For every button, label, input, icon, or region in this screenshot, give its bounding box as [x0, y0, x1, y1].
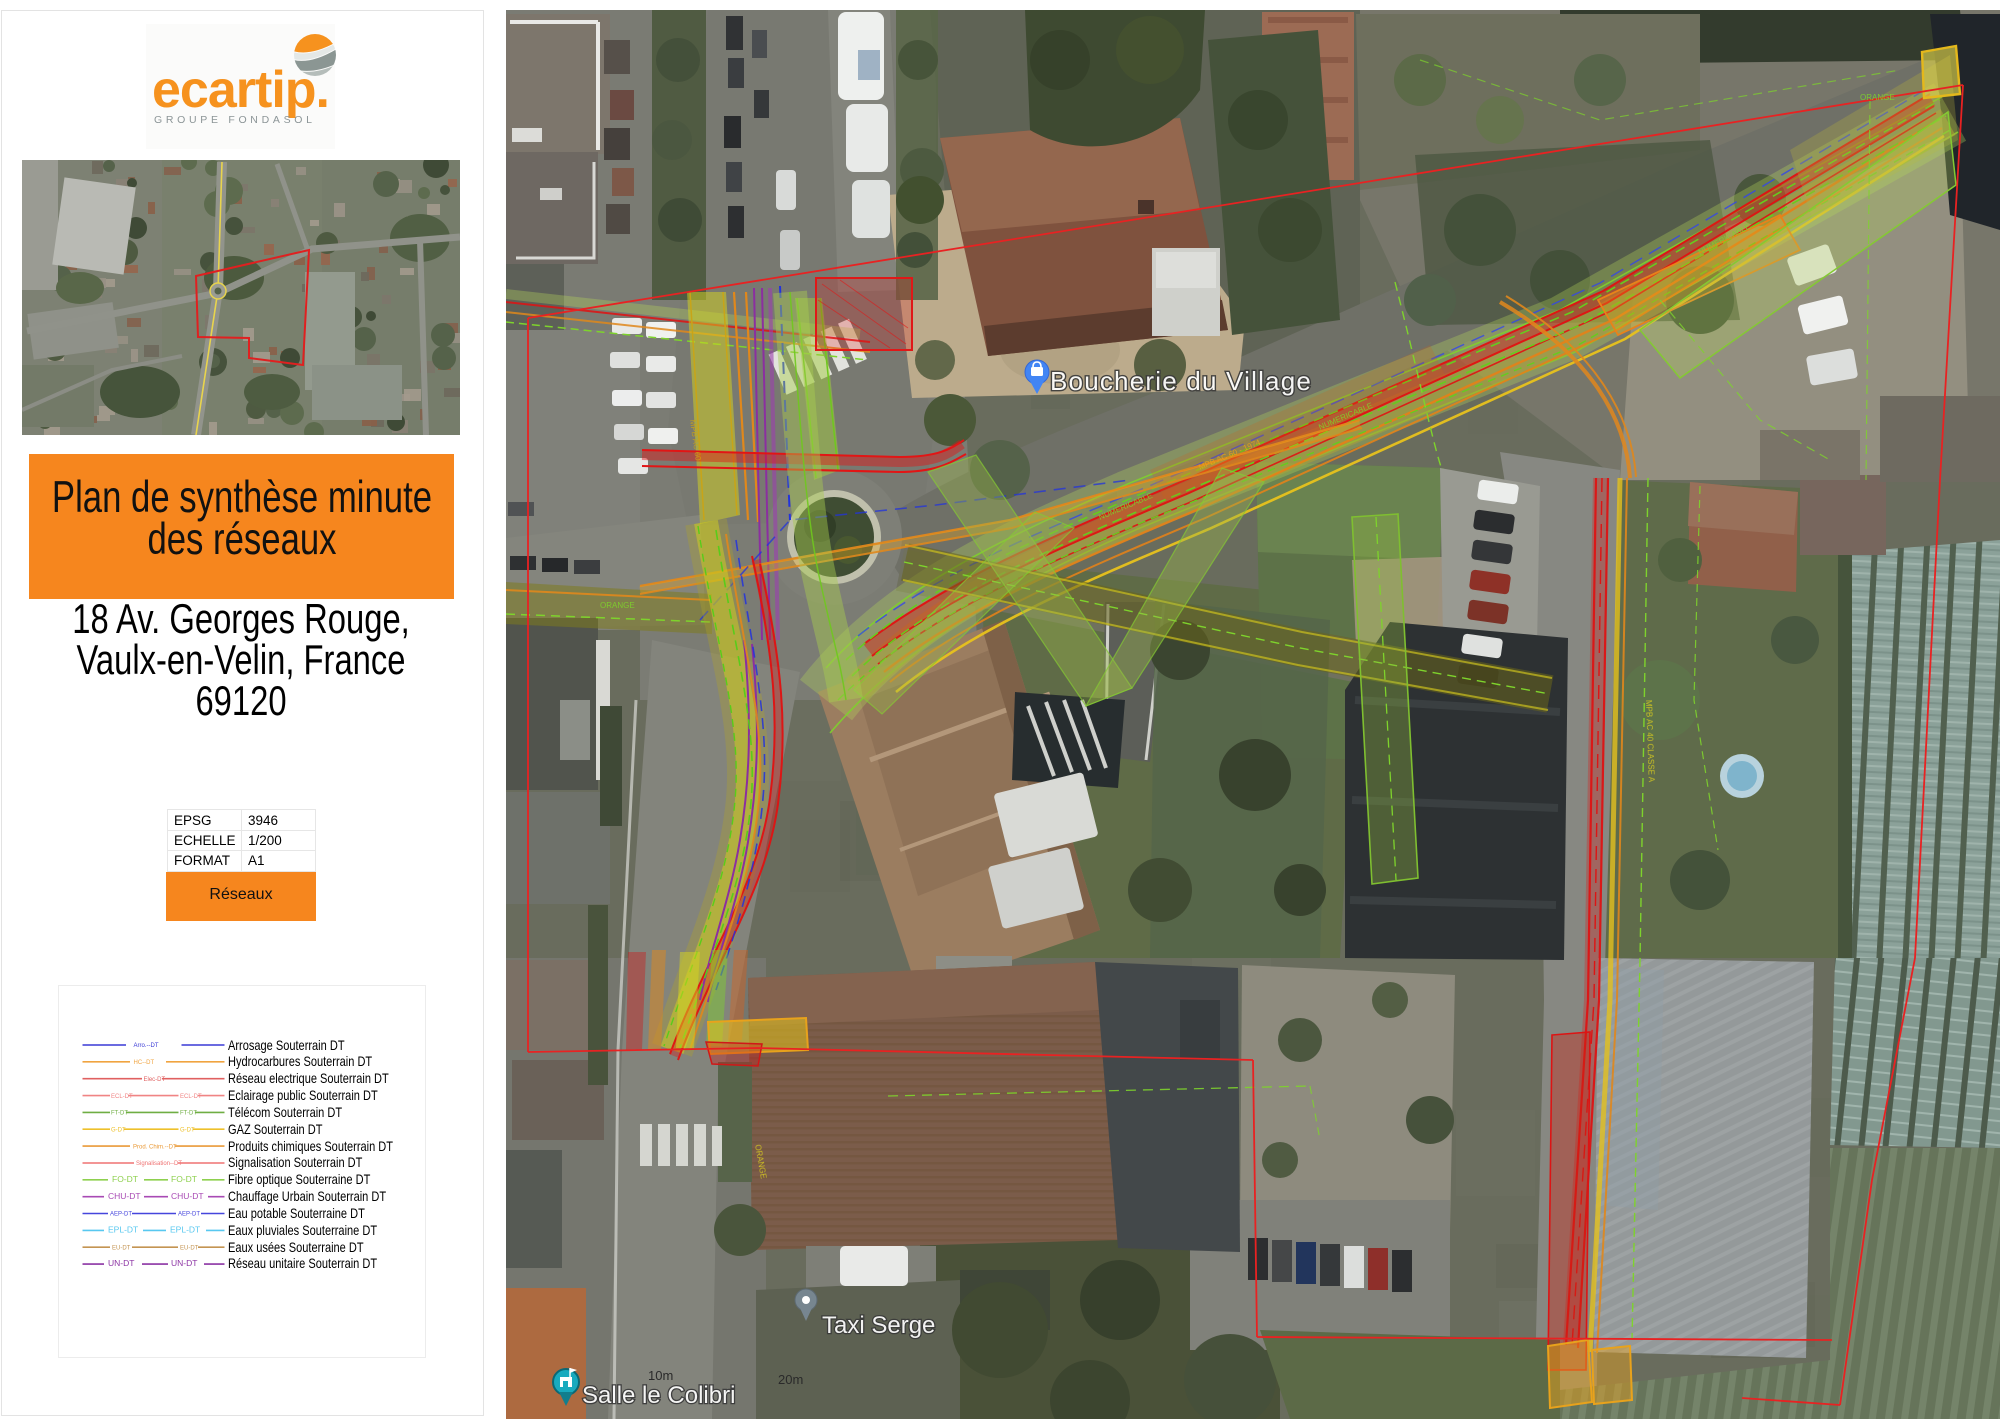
svg-text:Boucherie du Village: Boucherie du Village	[1050, 366, 1312, 396]
svg-text:EPL-DT: EPL-DT	[108, 1225, 138, 1235]
svg-text:ECL-DT: ECL-DT	[180, 1094, 202, 1100]
svg-text:Taxi Serge: Taxi Serge	[822, 1312, 935, 1339]
svg-text:20m: 20m	[778, 1372, 803, 1387]
svg-text:EU-DT: EU-DT	[112, 1245, 131, 1251]
svg-text:Arro.--DT: Arro.--DT	[134, 1043, 159, 1049]
svg-text:10m: 10m	[648, 1368, 673, 1383]
svg-text:FO-DT: FO-DT	[112, 1174, 138, 1184]
svg-text:AEP-DT: AEP-DT	[110, 1212, 132, 1218]
svg-text:FO-DT: FO-DT	[171, 1174, 197, 1184]
svg-text:Signalisation--DT: Signalisation--DT	[136, 1161, 182, 1167]
svg-text:Elec-DT: Elec-DT	[144, 1077, 166, 1083]
svg-text:AEP-DT: AEP-DT	[178, 1212, 200, 1218]
svg-text:Prod. Chim.--DT: Prod. Chim.--DT	[133, 1144, 177, 1150]
svg-text:HC--DT: HC--DT	[134, 1060, 155, 1066]
svg-text:CHU-DT: CHU-DT	[171, 1191, 204, 1201]
svg-text:CHU-DT: CHU-DT	[108, 1191, 141, 1201]
svg-text:G-DT: G-DT	[111, 1127, 126, 1133]
svg-text:ORANGE: ORANGE	[600, 601, 635, 610]
svg-text:EPL-DT: EPL-DT	[170, 1225, 200, 1235]
svg-text:UN-DT: UN-DT	[171, 1258, 197, 1268]
svg-text:ORANGE: ORANGE	[1860, 93, 1895, 102]
svg-text:G-DT: G-DT	[180, 1127, 195, 1133]
svg-text:ECL-DT: ECL-DT	[111, 1094, 133, 1100]
svg-text:Salle le Colibri: Salle le Colibri	[582, 1382, 735, 1409]
svg-text:FT-DT: FT-DT	[111, 1111, 128, 1117]
svg-text:FT-DT: FT-DT	[180, 1111, 197, 1117]
svg-text:UN-DT: UN-DT	[108, 1258, 134, 1268]
svg-text:EU-DT: EU-DT	[180, 1245, 199, 1251]
